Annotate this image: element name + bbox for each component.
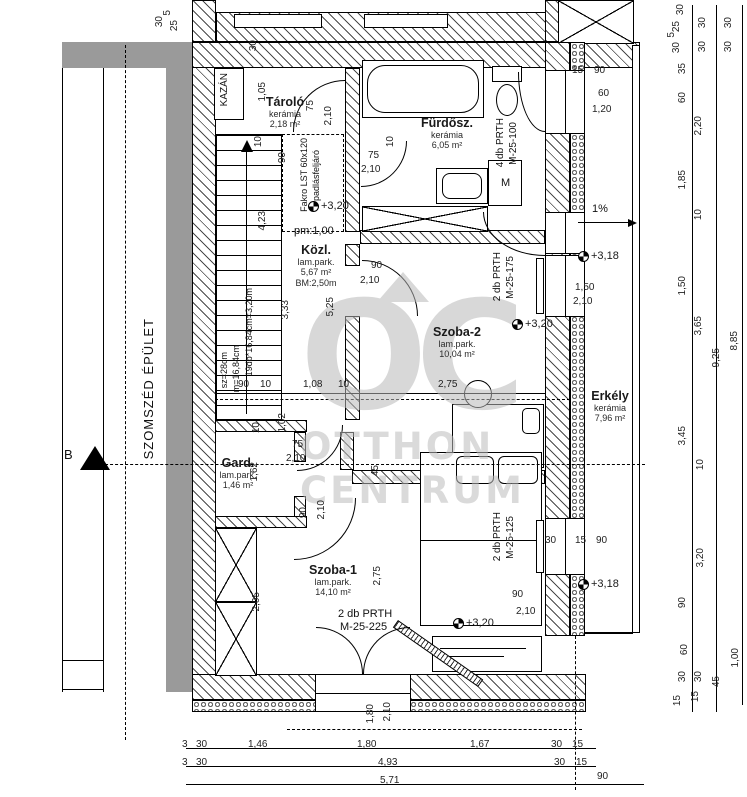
room-name: Közl. bbox=[295, 243, 336, 257]
dim-label: 30 bbox=[551, 740, 562, 750]
room-detail: 7,96 m² bbox=[591, 413, 629, 423]
level-value: +3,20 bbox=[321, 200, 349, 212]
dim-label: 30 bbox=[554, 758, 565, 768]
dim-label: 2,10 bbox=[573, 297, 592, 307]
level-marker: +3,20 bbox=[512, 318, 553, 330]
pillow-szoba2 bbox=[522, 408, 540, 434]
wardrobe-2 bbox=[215, 602, 257, 676]
annotation-label: pm:1,00 bbox=[294, 226, 334, 237]
door-arc-balcony bbox=[483, 212, 545, 256]
level-value: +3,20 bbox=[466, 617, 494, 629]
dim-label: 30 bbox=[672, 42, 682, 53]
upper-unit-room bbox=[234, 14, 322, 28]
dim-label: 5 bbox=[163, 10, 173, 16]
dim-label: 1,50 bbox=[575, 283, 594, 293]
dim-label: 30 bbox=[724, 41, 734, 52]
annotation-label: 1% bbox=[592, 204, 608, 215]
room-name: Fürdősz. bbox=[421, 116, 473, 130]
neighbor-wall-side bbox=[166, 42, 192, 692]
section-marker-b bbox=[80, 446, 110, 470]
annotation-label: M bbox=[501, 178, 510, 189]
dim-label: 2,10 bbox=[360, 276, 379, 286]
slope-arrow-head bbox=[628, 219, 637, 227]
dim-label: 2,20 bbox=[694, 116, 704, 135]
level-marker: +3,20 bbox=[453, 617, 494, 629]
annotation-label: SZOMSZÉD ÉPÜLET bbox=[142, 318, 155, 459]
dim-label: 15 bbox=[572, 740, 583, 750]
dim-label: 30 bbox=[676, 4, 686, 15]
wardrobe-1 bbox=[215, 528, 257, 602]
dim-label: 30 bbox=[196, 740, 207, 750]
annotation-label: M-25-225 bbox=[340, 622, 387, 633]
dim-label: 2,10 bbox=[286, 454, 305, 464]
room-label: Tárolókerámia2,18 m² bbox=[266, 95, 304, 130]
annotation-label: padlásfeljáró bbox=[312, 150, 321, 201]
dim-label: 90 bbox=[278, 152, 288, 163]
balcony-door-szoba2 bbox=[545, 212, 585, 254]
balcony-railing bbox=[632, 45, 640, 633]
level-symbol bbox=[578, 251, 589, 262]
bathtub-inner bbox=[367, 65, 479, 113]
wall-közl-szoba2-a bbox=[345, 244, 360, 266]
room-label: Erkélykerámia7,96 m² bbox=[591, 389, 629, 424]
dim-label: 15 bbox=[572, 66, 583, 76]
balcony-edge bbox=[585, 632, 633, 634]
room-detail: 10,04 m² bbox=[433, 349, 481, 359]
dim-label: 2,75 bbox=[373, 566, 383, 585]
dim-label: 45 bbox=[371, 465, 381, 476]
window-bathroom bbox=[545, 70, 585, 134]
room-detail: kerámia bbox=[591, 403, 629, 413]
dim-label: 5,25 bbox=[326, 297, 336, 316]
property-line-left bbox=[62, 42, 104, 692]
dim-chain-bottom-3 bbox=[186, 784, 644, 785]
dim-label: 90 bbox=[678, 597, 688, 608]
dim-label: 1,00 bbox=[731, 648, 741, 667]
dim-label: 3,20 bbox=[696, 548, 706, 567]
toilet-bowl bbox=[496, 84, 518, 116]
dim-label: 4,93 bbox=[378, 758, 397, 768]
door-arc-french-left bbox=[316, 627, 363, 674]
dim-label: 75 bbox=[292, 440, 303, 450]
bed-szoba1-foldline bbox=[420, 540, 542, 541]
dim-label: 30 bbox=[249, 40, 259, 51]
annotation-label: m=16,84cm bbox=[232, 345, 241, 392]
dim-label: 75 bbox=[306, 100, 316, 111]
annotation-label: 2 db PRTH bbox=[338, 609, 392, 620]
dim-label: 3,45 bbox=[678, 426, 688, 445]
annotation-label: 19db*16,84cm=3,20m bbox=[245, 288, 254, 376]
room-detail: kerámia bbox=[266, 109, 304, 119]
dim-label: 25 bbox=[170, 20, 180, 31]
door-arc-french-right bbox=[363, 627, 410, 674]
dim-label: 3,65 bbox=[694, 316, 704, 335]
dim-label: 5,71 bbox=[380, 776, 399, 786]
room-detail: lam.park. bbox=[295, 257, 336, 267]
pillow-szoba1-a bbox=[456, 456, 494, 484]
annotation-label: KAZÁN bbox=[220, 73, 230, 106]
wall-left-upper bbox=[192, 0, 216, 42]
dim-label: 30 bbox=[678, 671, 688, 682]
french-door-szoba1 bbox=[315, 674, 411, 712]
window-szoba1 bbox=[545, 518, 585, 575]
dim-label: 90 bbox=[597, 772, 608, 782]
dim-label: 60 bbox=[678, 92, 688, 103]
room-detail: 2,18 m² bbox=[266, 119, 304, 129]
dim-label: 15 bbox=[576, 758, 587, 768]
room-label: Szoba-2lam.park.10,04 m² bbox=[433, 325, 481, 360]
dim-label: 3 bbox=[182, 758, 188, 768]
wall-right-upper bbox=[545, 0, 559, 42]
room-name: Erkély bbox=[591, 389, 629, 403]
property-dashed-line bbox=[125, 45, 126, 740]
shower-niche bbox=[362, 206, 488, 232]
dim-label: 45 bbox=[712, 676, 722, 687]
radiator-szoba1 bbox=[536, 520, 544, 573]
dim-label: 5 bbox=[667, 32, 677, 38]
level-marker: +3,20 bbox=[308, 200, 349, 212]
room-detail: 1,46 m² bbox=[219, 480, 256, 490]
level-value: +3,18 bbox=[591, 578, 619, 590]
room-name: Szoba-1 bbox=[309, 563, 357, 577]
dim-label: 30 bbox=[545, 536, 556, 546]
dim-label: 75 bbox=[368, 151, 379, 161]
level-marker: +3,18 bbox=[578, 578, 619, 590]
annotation-label: 2 db PRTH bbox=[493, 512, 503, 561]
annotation-label: 4 db PRTH bbox=[496, 118, 506, 167]
room-detail: BM:2,50m bbox=[295, 278, 336, 288]
dim-label: 2,10 bbox=[383, 702, 393, 721]
slope-arrow-line bbox=[578, 222, 630, 223]
dim-label: 4,23 bbox=[258, 211, 268, 230]
room-detail: lam.park. bbox=[219, 470, 256, 480]
dim-label: 25 bbox=[672, 21, 682, 32]
annotation-label: sz=28cm bbox=[220, 352, 229, 388]
dim-label: 2,75 bbox=[438, 380, 457, 390]
dim-label: 15 bbox=[673, 695, 683, 706]
room-label: Fürdősz.kerámia6,05 m² bbox=[421, 116, 473, 151]
dim-label: 2,05 bbox=[252, 592, 262, 611]
upper-unit-room2 bbox=[364, 14, 448, 28]
dim-label: 10 bbox=[254, 136, 264, 147]
annotation-label: B bbox=[64, 448, 73, 461]
dim-label: 3,33 bbox=[281, 300, 291, 319]
annotation-label: M-25-100 bbox=[509, 122, 519, 165]
upper-unit-shower bbox=[558, 0, 634, 44]
dim-label: 1,67 bbox=[470, 740, 489, 750]
washbasin-inner bbox=[442, 173, 482, 199]
annotation-label: M-25-125 bbox=[506, 516, 516, 559]
dim-label: 2,10 bbox=[516, 607, 535, 617]
door-arc-bath-window bbox=[518, 72, 545, 132]
dim-label: 90 bbox=[594, 66, 605, 76]
dim-line-interior bbox=[215, 393, 545, 394]
dim-label: 1,02 bbox=[278, 413, 288, 432]
dim-label: 35 bbox=[678, 63, 688, 74]
wall-közl-szoba2-b bbox=[345, 316, 360, 420]
dim-label: 60 bbox=[680, 644, 690, 655]
dim-label: 30 bbox=[694, 671, 704, 682]
dim-label: 10 bbox=[694, 209, 704, 220]
radiator-szoba2 bbox=[536, 258, 544, 314]
dashed-line-szoba2 bbox=[215, 399, 570, 400]
desk-line-1 bbox=[440, 648, 526, 649]
dim-label: 8,85 bbox=[730, 331, 740, 350]
dim-label: 1,80 bbox=[357, 740, 376, 750]
annotation-label: M-25-175 bbox=[506, 256, 516, 299]
room-label: Gard.lam.park.1,46 m² bbox=[219, 456, 256, 491]
dim-label: 10 bbox=[386, 136, 396, 147]
dim-label: 10 bbox=[252, 422, 262, 433]
annotation-label: 2 db PRTH bbox=[493, 252, 503, 301]
level-symbol bbox=[453, 618, 464, 629]
dim-label: 2,10 bbox=[317, 500, 327, 519]
dim-label: 1,20 bbox=[592, 105, 611, 115]
dim-label: 30 bbox=[698, 41, 708, 52]
extension-line-bottom bbox=[287, 729, 582, 730]
room-name: Gard. bbox=[219, 456, 256, 470]
dim-label: 3 bbox=[182, 740, 188, 750]
dim-label: 10 bbox=[338, 380, 349, 390]
dim-label: 15 bbox=[691, 691, 701, 702]
floorplan-canvas: OC OTTHON CENTRUM Tárolókerámia2,18 m²Fü… bbox=[0, 0, 747, 797]
dim-label: 9,25 bbox=[712, 348, 722, 367]
dim-label: 1,50 bbox=[678, 276, 688, 295]
dim-label: 30 bbox=[698, 17, 708, 28]
dim-label: 1,85 bbox=[678, 170, 688, 189]
level-symbol bbox=[308, 201, 319, 212]
room-name: Tároló bbox=[266, 95, 304, 109]
level-symbol bbox=[512, 319, 523, 330]
level-symbol bbox=[578, 579, 589, 590]
dim-label: 30 bbox=[724, 17, 734, 28]
room-detail: kerámia bbox=[421, 130, 473, 140]
dim-label: 90 bbox=[512, 590, 523, 600]
dim-chain-right-1 bbox=[692, 5, 693, 712]
fence-stub bbox=[62, 660, 104, 690]
stair-direction-arrow bbox=[241, 140, 253, 152]
dim-label: 1,80 bbox=[366, 704, 376, 723]
room-detail: lam.park. bbox=[309, 577, 357, 587]
room-detail: 5,67 m² bbox=[295, 267, 336, 277]
dim-label: 1,46 bbox=[248, 740, 267, 750]
dim-label: 10 bbox=[260, 380, 271, 390]
room-name: Szoba-2 bbox=[433, 325, 481, 339]
room-label: Szoba-1lam.park.14,10 m² bbox=[309, 563, 357, 598]
dim-label: 2,10 bbox=[361, 165, 380, 175]
dim-label: 30 bbox=[155, 16, 165, 27]
dim-label: 30 bbox=[196, 758, 207, 768]
room-detail: 6,05 m² bbox=[421, 140, 473, 150]
room-detail: lam.park. bbox=[433, 339, 481, 349]
level-value: +3,20 bbox=[525, 318, 553, 330]
dim-chain-right-3 bbox=[742, 5, 743, 705]
dim-label: 90 bbox=[371, 261, 382, 271]
dim-label: 10 bbox=[696, 459, 706, 470]
dim-label: 60 bbox=[598, 89, 609, 99]
room-detail: 14,10 m² bbox=[309, 587, 357, 597]
lamp-table bbox=[464, 380, 492, 408]
room-label: Közl.lam.park.5,67 m²BM:2,50m bbox=[295, 243, 336, 288]
level-value: +3,18 bbox=[591, 250, 619, 262]
wall-left bbox=[192, 42, 216, 700]
dim-label: 2,10 bbox=[324, 106, 334, 125]
dim-label: 90 bbox=[299, 507, 309, 518]
dim-label: 15 bbox=[575, 536, 586, 546]
pillow-szoba1-b bbox=[498, 456, 538, 484]
dim-label: 1,08 bbox=[303, 380, 322, 390]
dim-label: 90 bbox=[596, 536, 607, 546]
level-marker: +3,18 bbox=[578, 250, 619, 262]
